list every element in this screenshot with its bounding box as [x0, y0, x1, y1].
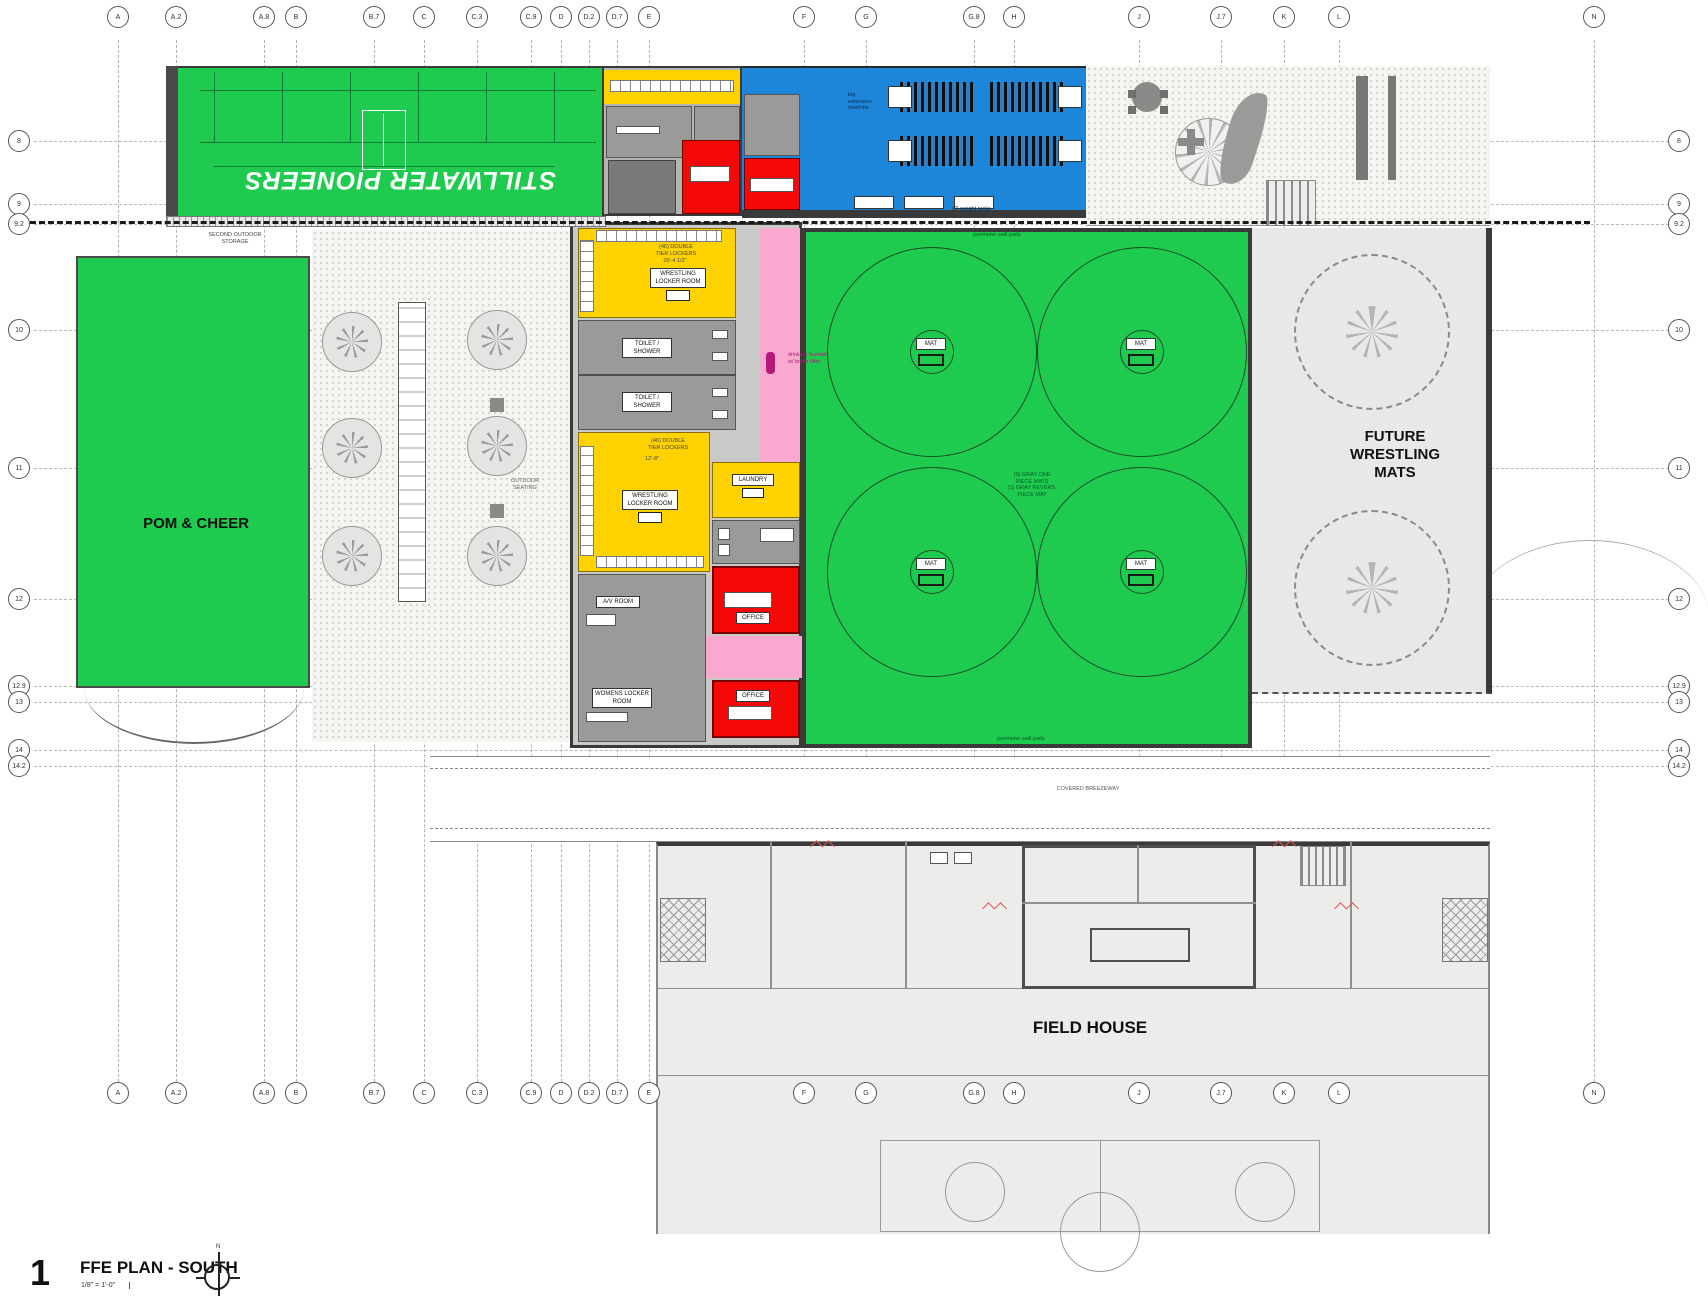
wl2-tag — [638, 512, 662, 523]
outdoor-seating-note: OUTDOOR SEATING — [505, 478, 545, 491]
grid-bubble-top-B: B — [285, 6, 307, 28]
toilet-room-divider — [578, 374, 736, 376]
sheet-scale: 1/8" = 1'-0" — [81, 1282, 130, 1289]
grid-bubble-left-10: 10 — [8, 319, 30, 341]
equipment-shelf-3 — [760, 528, 794, 542]
wl2-dim: 12'-8" — [632, 456, 672, 463]
office-2-desk — [728, 706, 772, 720]
grid-bubble-bottom-D.2: D.2 — [578, 1082, 600, 1104]
mat-tag-2 — [1128, 354, 1154, 366]
wl1-locker-bank-left — [580, 240, 594, 312]
planter-foliage-icon-1 — [336, 326, 368, 358]
drinking-fountain-icon — [766, 352, 775, 374]
weight-room-gray-room — [744, 94, 800, 156]
grid-bubble-right-14.2: 14.2 — [1668, 755, 1690, 777]
grid-bubble-top-F: F — [793, 6, 815, 28]
weight-rack-cap-4 — [1058, 140, 1082, 162]
grid-bubble-top-K: K — [1273, 6, 1295, 28]
grid-bubble-bottom-C.3: C.3 — [466, 1082, 488, 1104]
future-mat-spiral-icon-2 — [1346, 562, 1398, 614]
grid-bubble-left-8: 8 — [8, 130, 30, 152]
wl1-dim: 20'-4 1/2" — [650, 258, 700, 265]
grid-bubble-top-H: H — [1003, 6, 1025, 28]
grid-line-row-14 — [34, 750, 1674, 751]
grid-bubble-bottom-B.7: B.7 — [363, 1082, 385, 1104]
toilet-room-1-label: TOILET / SHOWER — [622, 338, 672, 358]
leg-extension-note: leg extension machine — [848, 92, 882, 112]
property-dashed-line — [30, 221, 1590, 224]
grid-bubble-top-C: C — [413, 6, 435, 28]
laundry-label: LAUNDRY — [732, 474, 774, 486]
grid-bubble-bottom-A: A — [107, 1082, 129, 1104]
patio-cross-table-icon-2 — [1187, 129, 1195, 155]
turf-room-label: STILLWATER PIONEERS — [230, 160, 570, 200]
patio-chair-icon-1 — [1128, 90, 1136, 98]
toilet-fixture-4 — [712, 410, 728, 419]
grid-bubble-right-9.2: 9.2 — [1668, 213, 1690, 235]
fh-toilet-left-icon — [660, 898, 706, 962]
grid-bubble-top-A: A — [107, 6, 129, 28]
fh-small-box-2 — [954, 852, 972, 864]
turf-line-h-0 — [200, 90, 596, 91]
future-mat-spiral-icon-1 — [1346, 306, 1398, 358]
mat-inner-circle-3 — [910, 550, 954, 594]
mat-tag-1 — [918, 354, 944, 366]
fh-court-center-circle — [1060, 1192, 1140, 1272]
turf-white-target-line — [383, 114, 384, 166]
grid-bubble-top-G: G — [855, 6, 877, 28]
north-arrow-icon — [204, 1264, 230, 1290]
patio-chair-icon-3 — [1128, 106, 1136, 114]
pom-cheer-label: POM & CHEER — [106, 515, 286, 532]
turf-line-v-0 — [214, 72, 215, 142]
fh-wall-h2 — [656, 1075, 1490, 1076]
fh-center-room — [1022, 845, 1256, 989]
patio-stair-icon — [1266, 180, 1316, 226]
grid-bubble-bottom-C.9: C.9 — [520, 1082, 542, 1104]
second-outdoor-storage-note: SECOND OUTDOOR STORAGE — [200, 232, 270, 245]
fh-court-circle-left — [945, 1162, 1005, 1222]
grid-bubble-top-E: E — [638, 6, 660, 28]
mat-inner-circle-4 — [1120, 550, 1164, 594]
grid-bubble-bottom-L: L — [1328, 1082, 1350, 1104]
north-office-desk — [690, 166, 730, 182]
grid-bubble-bottom-N: N — [1583, 1082, 1605, 1104]
grid-bubble-left-9.2: 9.2 — [8, 213, 30, 235]
mat-label-2: MAT — [1126, 338, 1156, 350]
fh-center-inner-box — [1090, 928, 1190, 962]
patio-table-icon — [1132, 82, 1162, 112]
floor-plan-sheet: STILLWATER PIONEERS leg extension machin… — [0, 0, 1708, 1306]
planter-foliage-icon-5 — [481, 430, 513, 462]
planter-foliage-icon-6 — [481, 540, 513, 572]
grid-bubble-bottom-C: C — [413, 1082, 435, 1104]
wl2-label: WRESTLING LOCKER ROOM — [622, 490, 678, 510]
planter-bed — [398, 302, 426, 602]
north-locker-bank — [610, 80, 734, 92]
planter-foliage-icon-3 — [336, 540, 368, 572]
grid-bubble-bottom-J.7: J.7 — [1210, 1082, 1232, 1104]
turf-line-v-3 — [418, 72, 419, 142]
sheet-number: 1 — [30, 1252, 50, 1294]
grid-bubble-top-A.8: A.8 — [253, 6, 275, 28]
north-arrow-needle — [218, 1252, 220, 1296]
equipment-shelf-2 — [718, 544, 730, 556]
wall-pads-note-bottom: perimeter wall pads — [976, 736, 1066, 743]
grid-bubble-right-8: 8 — [1668, 130, 1690, 152]
grid-bubble-left-9: 9 — [8, 193, 30, 215]
grid-bubble-bottom-K: K — [1273, 1082, 1295, 1104]
grid-bubble-top-A.2: A.2 — [165, 6, 187, 28]
grid-bubble-bottom-F: F — [793, 1082, 815, 1104]
grid-bubble-bottom-A.2: A.2 — [165, 1082, 187, 1104]
wl1-tag — [666, 290, 690, 301]
grid-line-col-N — [1594, 40, 1595, 1082]
grid-bubble-left-12: 12 — [8, 588, 30, 610]
seating-table-icon-2 — [490, 504, 504, 518]
grid-bubble-right-9: 9 — [1668, 193, 1690, 215]
breezeway-dash-top — [430, 768, 1490, 769]
future-wrestling-label: FUTURE WRESTLING MATS — [1330, 428, 1460, 482]
turf-line-v-1 — [282, 72, 283, 142]
fh-small-box-1 — [930, 852, 948, 864]
planter-foliage-icon-4 — [481, 324, 513, 356]
planter-foliage-icon-2 — [336, 432, 368, 464]
patio-chair-icon-2 — [1160, 90, 1168, 98]
equipment-room — [712, 520, 800, 564]
grid-bubble-bottom-B: B — [285, 1082, 307, 1104]
patio-chair-icon-4 — [1160, 106, 1168, 114]
breezeway-dash-bottom — [430, 828, 1490, 829]
fh-toilet-right-icon — [1442, 898, 1488, 962]
exercise-machine-icon — [616, 126, 660, 134]
laundry-tag — [742, 488, 764, 498]
grid-bubble-top-C.3: C.3 — [466, 6, 488, 28]
turf-line-v-2 — [350, 72, 351, 142]
seating-table-icon-1 — [490, 398, 504, 412]
mat-inner-circle-2 — [1120, 330, 1164, 374]
pom-cheer-room — [76, 256, 310, 688]
fh-court-circle-right — [1235, 1162, 1295, 1222]
mat-label-4: MAT — [1126, 558, 1156, 570]
womens-bench — [586, 712, 628, 722]
grid-bubble-top-B.7: B.7 — [363, 6, 385, 28]
grid-bubble-top-D: D — [550, 6, 572, 28]
grid-bubble-top-C.9: C.9 — [520, 6, 542, 28]
grid-bubble-bottom-J: J — [1128, 1082, 1150, 1104]
weight-rack-icon-4 — [990, 136, 1064, 166]
toilet-fixture-2 — [712, 352, 728, 361]
turf-line-v-4 — [486, 72, 487, 142]
grid-bubble-top-J.7: J.7 — [1210, 6, 1232, 28]
office-1-desk — [724, 592, 772, 608]
grid-bubble-top-D.2: D.2 — [578, 6, 600, 28]
corridor-pink-vertical — [760, 228, 800, 462]
north-label: N — [216, 1244, 220, 1250]
mat-label-1: MAT — [916, 338, 946, 350]
weight-rack-icon-2 — [990, 82, 1064, 112]
equipment-shelf-1 — [718, 528, 730, 540]
breezeway-label: COVERED BREEZEWAY — [1048, 786, 1128, 793]
weight-racks-note: (2) weight racks — [952, 206, 1012, 213]
grid-bubble-top-D.7: D.7 — [606, 6, 628, 28]
grid-bubble-top-L: L — [1328, 6, 1350, 28]
grid-bubble-right-12: 12 — [1668, 588, 1690, 610]
north-arrow-tick-right — [230, 1277, 240, 1279]
pom-canopy-arc — [84, 688, 304, 744]
grid-bubble-left-14.2: 14.2 — [8, 755, 30, 777]
wl1-label: WRESTLING LOCKER ROOM — [650, 268, 706, 288]
grid-bubble-bottom-E: E — [638, 1082, 660, 1104]
weight-rack-cap-3 — [888, 140, 912, 162]
wl1-lockers-note: (46) DOUBLE TIER LOCKERS — [648, 244, 704, 257]
grid-bubble-top-N: N — [1583, 6, 1605, 28]
av-counter — [586, 614, 616, 626]
grid-bubble-right-13: 13 — [1668, 691, 1690, 713]
mats-note: (5) GRAY ONE PIECE MATS (1) GRAY REVERS.… — [1000, 472, 1064, 498]
bench-icon-1 — [854, 196, 894, 209]
weight-rack-cap-2 — [1058, 86, 1082, 108]
field-house-label: FIELD HOUSE — [1000, 1018, 1180, 1038]
weight-rack-cap-1 — [888, 86, 912, 108]
fh-stair-icon — [1300, 846, 1346, 886]
grid-bubble-left-13: 13 — [8, 691, 30, 713]
patio-column-2 — [1388, 76, 1396, 180]
fh-center-room-divider — [1022, 902, 1256, 904]
office-1-label: OFFICE — [736, 612, 770, 624]
fh-wall-v2 — [905, 842, 907, 988]
mat-inner-circle-1 — [910, 330, 954, 374]
weight-room-south-wall — [742, 210, 1086, 218]
turf-left-wall — [166, 66, 178, 216]
grid-bubble-left-11: 11 — [8, 457, 30, 479]
weight-office-desk — [750, 178, 794, 192]
bench-icon-2 — [904, 196, 944, 209]
wl1-locker-bank-top — [596, 230, 722, 242]
av-room-label: A/V ROOM — [596, 596, 640, 608]
north-dark-room — [608, 160, 676, 214]
grid-bubble-bottom-D: D — [550, 1082, 572, 1104]
wl2-locker-bank-bottom — [596, 556, 704, 568]
womens-locker-label: WOMENS LOCKER ROOM — [592, 688, 652, 708]
wl2-lockers-note: (46) DOUBLE TIER LOCKERS — [640, 438, 696, 451]
grid-bubble-top-G.8: G.8 — [963, 6, 985, 28]
fh-center-room-vwall — [1137, 845, 1139, 904]
north-arrow-tick-left — [196, 1277, 206, 1279]
grid-bubble-bottom-A.8: A.8 — [253, 1082, 275, 1104]
mat-tag-4 — [1128, 574, 1154, 586]
fh-wall-v1 — [770, 842, 772, 988]
grid-bubble-bottom-D.7: D.7 — [606, 1082, 628, 1104]
mat-tag-3 — [918, 574, 944, 586]
office-2-label: OFFICE — [736, 690, 770, 702]
drinking-fountain-note: drinking fountain w/ bottle filler — [788, 352, 832, 365]
grid-bubble-top-J: J — [1128, 6, 1150, 28]
wl2-locker-bank-left — [580, 446, 594, 556]
wall-pads-note-top: perimeter wall pads — [952, 232, 1042, 239]
turf-line-v-5 — [554, 72, 555, 142]
grid-bubble-right-10: 10 — [1668, 319, 1690, 341]
patio-column-1 — [1356, 76, 1368, 180]
toilet-room-2-label: TOILET / SHOWER — [622, 392, 672, 412]
grid-bubble-bottom-G.8: G.8 — [963, 1082, 985, 1104]
toilet-fixture-3 — [712, 388, 728, 397]
grid-bubble-right-11: 11 — [1668, 457, 1690, 479]
toilet-fixture-1 — [712, 330, 728, 339]
mat-label-3: MAT — [916, 558, 946, 570]
grid-bubble-bottom-G: G — [855, 1082, 877, 1104]
grid-bubble-bottom-H: H — [1003, 1082, 1025, 1104]
